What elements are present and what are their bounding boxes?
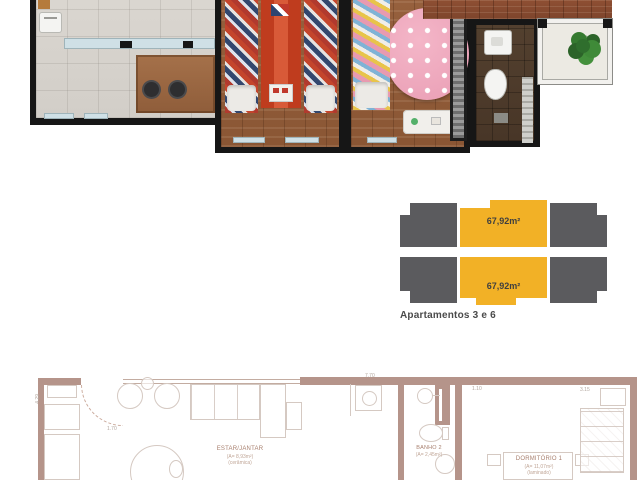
toilet bbox=[419, 424, 443, 442]
bathroom-sink bbox=[417, 388, 433, 404]
render-bedroom-1 bbox=[215, 0, 345, 153]
dim-label: 1.70 bbox=[107, 426, 117, 432]
wall bbox=[38, 378, 81, 385]
sink-icon bbox=[484, 30, 512, 55]
kitchen-counter bbox=[44, 404, 80, 430]
unit-block-highlight-top: 67,92m² bbox=[460, 200, 547, 247]
unit-block-gray bbox=[550, 203, 607, 247]
window bbox=[367, 137, 397, 143]
room-label-banho: BANHO 2 (A= 2,45m²) bbox=[401, 445, 457, 459]
render-3d-plan bbox=[30, 0, 612, 153]
room-name: DORMITÓRIO 1 bbox=[489, 456, 589, 464]
room-name: BANHO 2 bbox=[401, 445, 457, 452]
render-kitchen-area bbox=[30, 0, 215, 125]
window bbox=[233, 137, 265, 143]
chair bbox=[169, 460, 183, 478]
sofa-chaise bbox=[260, 384, 286, 438]
duct bbox=[435, 385, 450, 425]
kitchen-counter bbox=[44, 434, 80, 480]
dim-label: 4.29 bbox=[35, 394, 41, 404]
bed bbox=[353, 0, 390, 110]
key-plan-caption: Apartamentos 3 e 6 bbox=[400, 310, 496, 321]
wall bbox=[630, 377, 637, 480]
room-name: ESTAR/JANTAR bbox=[195, 446, 285, 454]
dim-label: 7.70 bbox=[365, 373, 375, 379]
dim-label: 3.15 bbox=[580, 387, 590, 393]
unit-block-highlight-bottom: 67,92m² bbox=[460, 257, 547, 305]
window-band bbox=[64, 38, 215, 49]
wardrobe bbox=[450, 8, 467, 141]
armchair bbox=[154, 383, 180, 409]
divider-line bbox=[350, 384, 351, 416]
bed bbox=[225, 0, 258, 113]
building-key-plan: 67,92m² 67,92m² Apartamentos 3 e 6 bbox=[398, 198, 603, 328]
dim-label: 1.10 bbox=[472, 386, 482, 392]
washing-machine bbox=[355, 385, 382, 411]
floorplan-sheet: 67,92m² 67,92m² Apartamentos 3 e 6 bbox=[0, 0, 640, 480]
entry-cabinet bbox=[47, 385, 77, 398]
room-note: (laminado) bbox=[489, 470, 589, 477]
plan-2d: ESTAR/JANTAR (A= 8,93m²) (cerâmica) BANH… bbox=[35, 360, 637, 480]
bed bbox=[304, 0, 337, 113]
shower bbox=[522, 77, 533, 143]
toilet-icon bbox=[484, 69, 507, 100]
room-label-estar: ESTAR/JANTAR (A= 8,93m²) (cerâmica) bbox=[195, 446, 285, 467]
sofa-arm bbox=[286, 402, 302, 430]
side-table bbox=[141, 377, 154, 390]
window bbox=[84, 113, 108, 119]
window bbox=[285, 137, 319, 143]
room-note: (cerâmica) bbox=[195, 460, 285, 467]
dresser bbox=[600, 388, 626, 406]
desk bbox=[403, 110, 453, 134]
wall bbox=[398, 382, 404, 480]
faucet-line bbox=[432, 395, 440, 396]
unit-block-gray bbox=[400, 257, 457, 303]
unit-block-gray bbox=[550, 257, 607, 303]
plant-icon bbox=[576, 39, 590, 53]
window bbox=[44, 113, 74, 119]
wall bbox=[455, 382, 462, 480]
armchair bbox=[117, 383, 143, 409]
render-balcony bbox=[538, 19, 612, 84]
rug-union-jack bbox=[261, 0, 301, 108]
washer-icon bbox=[39, 12, 62, 33]
room-area: (A= 2,45m²) bbox=[401, 452, 457, 459]
sofa bbox=[190, 384, 260, 420]
unit-block-gray bbox=[400, 203, 457, 247]
room-label-dorm: DORMITÓRIO 1 (A= 11,07m²) (laminado) bbox=[489, 456, 589, 477]
stool-icon bbox=[144, 82, 159, 97]
unit-area-label: 67,92m² bbox=[460, 216, 547, 226]
exterior-deck bbox=[423, 0, 612, 19]
render-bathroom bbox=[470, 19, 540, 147]
unit-area-label: 67,92m² bbox=[460, 281, 547, 291]
stool-icon bbox=[170, 82, 185, 97]
bath-mat bbox=[494, 113, 508, 123]
render-bedroom-2 bbox=[345, 0, 470, 153]
shelf bbox=[38, 0, 50, 9]
toilet-tank bbox=[442, 427, 449, 440]
